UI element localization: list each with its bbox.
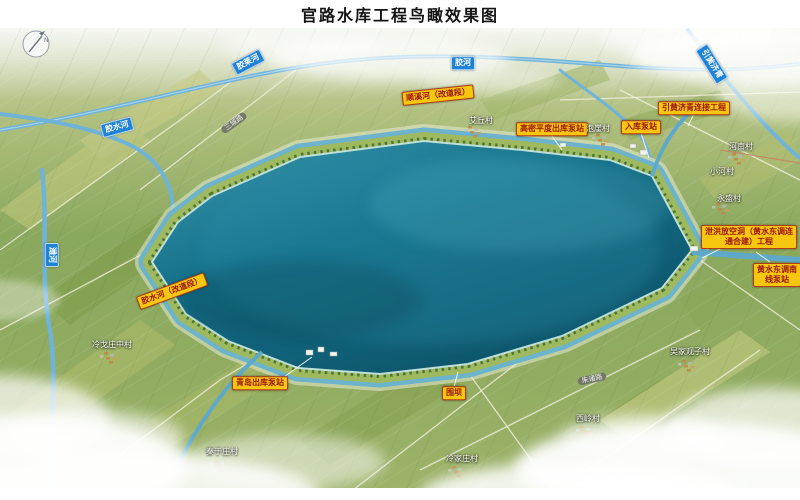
north-compass-icon: N [23,31,49,57]
bottom-margin [0,488,800,500]
svg-text:N: N [44,37,49,44]
rendering-canvas: N 官路水库工程鸟瞰效果图 顺溪河（改道段） 高密平度出库泵站 入库泵站 引黄济… [0,0,800,500]
title-bar: 官路水库工程鸟瞰效果图 [0,0,800,28]
page-title: 官路水库工程鸟瞰效果图 [301,2,499,26]
birdseye-map-image: N [0,0,800,500]
